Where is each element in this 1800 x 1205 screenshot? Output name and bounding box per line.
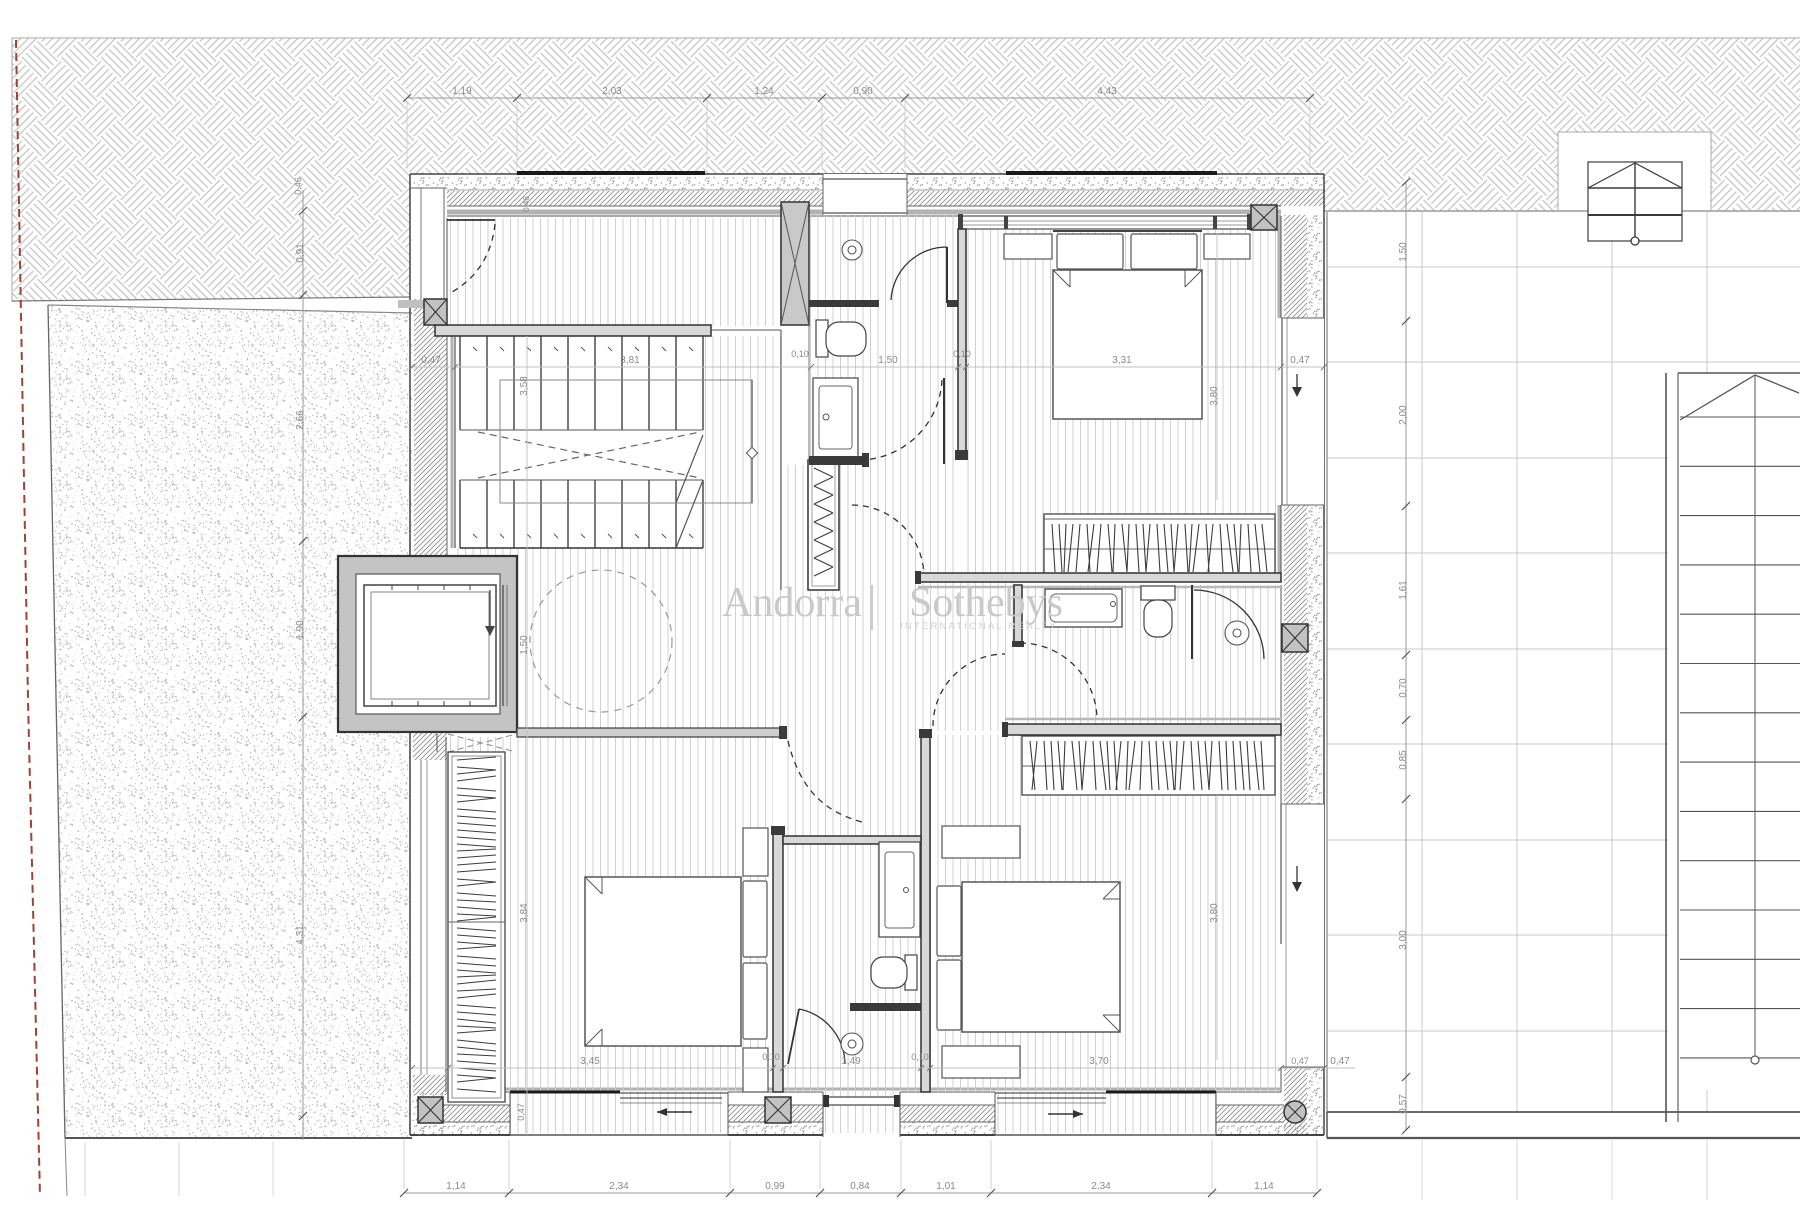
svg-text:1,24: 1,24: [754, 86, 774, 97]
svg-text:0,47: 0,47: [1330, 1056, 1350, 1067]
svg-text:3,45: 3,45: [580, 1056, 600, 1067]
svg-text:3,58: 3,58: [519, 376, 530, 396]
svg-text:1,50: 1,50: [1398, 242, 1409, 262]
svg-text:3,80: 3,80: [1209, 903, 1220, 923]
svg-text:2,34: 2,34: [1091, 1181, 1111, 1192]
svg-text:2,00: 2,00: [1398, 405, 1409, 425]
svg-text:0,46: 0,46: [522, 196, 531, 212]
svg-text:3,81: 3,81: [620, 355, 640, 366]
svg-text:4,43: 4,43: [1097, 86, 1117, 97]
svg-text:2,34: 2,34: [609, 1181, 629, 1192]
svg-text:Andorra: Andorra: [722, 580, 862, 626]
svg-text:1,50: 1,50: [519, 635, 530, 655]
svg-text:0,90: 0,90: [853, 86, 873, 97]
svg-text:0,70: 0,70: [1398, 678, 1409, 698]
svg-text:0,84: 0,84: [850, 1181, 870, 1192]
svg-text:3,00: 3,00: [1398, 930, 1409, 950]
svg-text:0,57: 0,57: [1398, 1094, 1409, 1114]
svg-text:1,19: 1,19: [452, 86, 472, 97]
svg-text:0,46: 0,46: [293, 177, 303, 195]
svg-text:1,61: 1,61: [1398, 580, 1409, 600]
svg-text:0,10: 0,10: [953, 349, 971, 359]
svg-text:1,14: 1,14: [446, 1181, 466, 1192]
svg-text:0,47: 0,47: [421, 355, 441, 366]
svg-text:4,31: 4,31: [295, 925, 306, 945]
svg-text:3,80: 3,80: [1209, 386, 1220, 406]
svg-text:0,10: 0,10: [762, 1052, 780, 1062]
svg-text:0,47: 0,47: [1290, 355, 1310, 366]
svg-text:Sothebys: Sothebys: [909, 580, 1063, 626]
svg-text:1,14: 1,14: [1254, 1181, 1274, 1192]
svg-text:0,47: 0,47: [516, 1103, 526, 1121]
svg-text:1,50: 1,50: [878, 355, 898, 366]
svg-text:0,47: 0,47: [1291, 1056, 1309, 1066]
svg-text:0,10: 0,10: [791, 349, 809, 359]
svg-text:3,70: 3,70: [1089, 1056, 1109, 1067]
svg-text:0,10: 0,10: [911, 1052, 929, 1062]
svg-text:2,66: 2,66: [295, 410, 306, 430]
svg-text:3,84: 3,84: [519, 903, 530, 923]
svg-text:1,01: 1,01: [936, 1181, 956, 1192]
svg-text:0,91: 0,91: [295, 243, 306, 263]
svg-text:0,85: 0,85: [1398, 750, 1409, 770]
svg-text:3,31: 3,31: [1112, 355, 1132, 366]
svg-text:2,03: 2,03: [602, 86, 622, 97]
svg-text:1,90: 1,90: [295, 620, 306, 640]
svg-text:0,99: 0,99: [765, 1181, 785, 1192]
svg-text:INTERNATIONAL REALTY: INTERNATIONAL REALTY: [900, 621, 1058, 632]
svg-text:1,49: 1,49: [841, 1056, 861, 1067]
